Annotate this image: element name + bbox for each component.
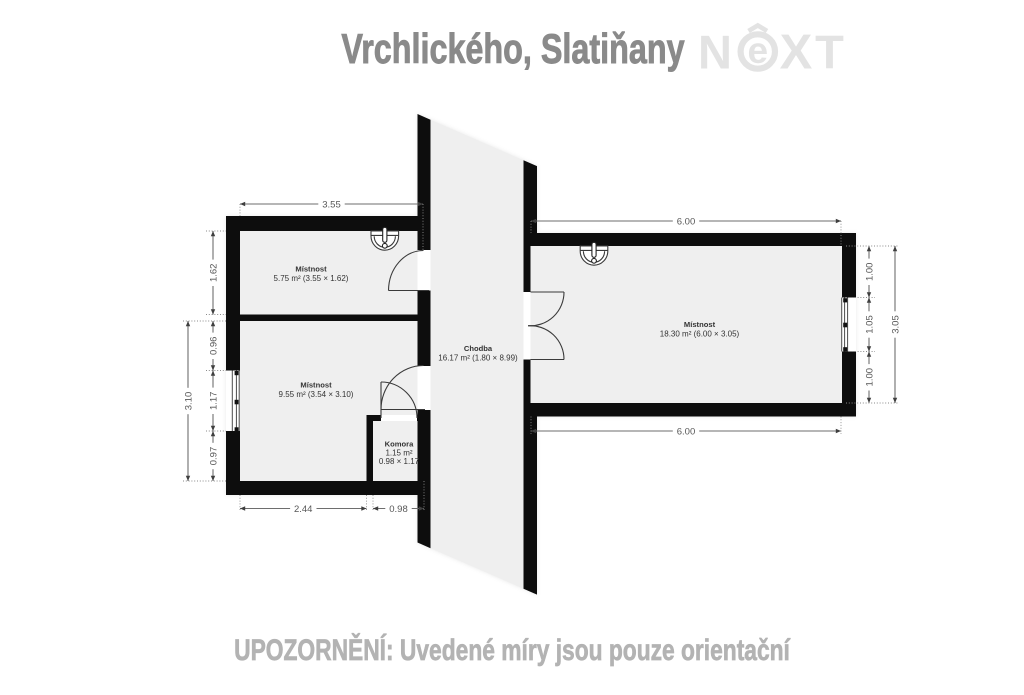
svg-text:0.98: 0.98 — [389, 504, 408, 515]
svg-text:Místnost: Místnost — [295, 265, 327, 274]
svg-text:e: e — [748, 30, 769, 71]
svg-text:T: T — [815, 26, 844, 79]
svg-text:1.17: 1.17 — [208, 392, 219, 411]
svg-text:0.98 × 1.17: 0.98 × 1.17 — [379, 457, 420, 466]
svg-text:0.96: 0.96 — [208, 337, 219, 356]
svg-text:1.00: 1.00 — [864, 368, 875, 387]
svg-text:Místnost: Místnost — [300, 381, 332, 390]
svg-text:1.00: 1.00 — [864, 263, 875, 282]
svg-text:Místnost: Místnost — [684, 320, 716, 329]
svg-text:3.05: 3.05 — [890, 315, 901, 334]
svg-text:1.62: 1.62 — [208, 264, 219, 283]
svg-text:6.00: 6.00 — [677, 426, 696, 437]
svg-text:0.97: 0.97 — [208, 447, 219, 466]
svg-text:X: X — [780, 26, 813, 80]
svg-text:3.10: 3.10 — [183, 392, 194, 411]
svg-text:9.55 m² (3.54 × 3.10): 9.55 m² (3.54 × 3.10) — [279, 390, 354, 399]
svg-text:3.55: 3.55 — [322, 199, 341, 210]
svg-text:2.44: 2.44 — [294, 504, 313, 515]
svg-text:6.00: 6.00 — [677, 216, 696, 227]
svg-text:16.17 m² (1.80 × 8.99): 16.17 m² (1.80 × 8.99) — [438, 354, 518, 363]
svg-text:18.30 m² (6.00 × 3.05): 18.30 m² (6.00 × 3.05) — [660, 330, 740, 339]
svg-text:5.75 m² (3.55 × 1.62): 5.75 m² (3.55 × 1.62) — [274, 274, 349, 283]
svg-text:Vrchlického, Slatiňany: Vrchlického, Slatiňany — [341, 25, 684, 72]
svg-text:N: N — [698, 26, 732, 79]
svg-text:Chodba: Chodba — [464, 344, 493, 353]
svg-text:Komora: Komora — [385, 440, 414, 449]
svg-text:UPOZORNĚNÍ: Uvedené míry jsou: UPOZORNĚNÍ: Uvedené míry jsou pouze orie… — [234, 633, 791, 667]
svg-text:1.05: 1.05 — [864, 315, 875, 334]
